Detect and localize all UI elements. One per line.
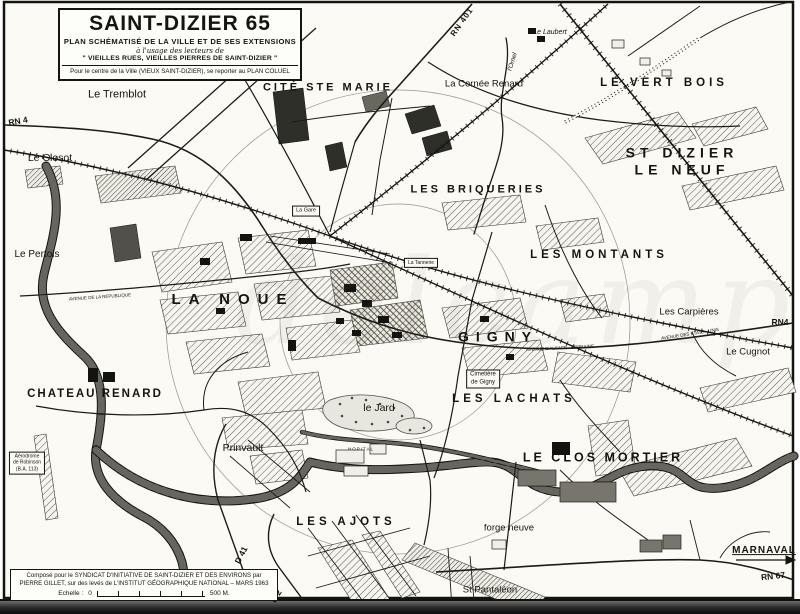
- scale-bar: [97, 591, 205, 597]
- map-reference-note: Pour le centre de la Ville (VIEUX SAINT-…: [62, 65, 298, 75]
- map-subtitle-note: à l'usage des lecteurs de: [62, 47, 298, 55]
- credit-box: Composé pour le SYNDICAT D'INITIATIVE DE…: [10, 569, 278, 601]
- title-box: SAINT-DIZIER 65 PLAN SCHÉMATISÉ DE LA VI…: [58, 8, 302, 81]
- scale-start: 0: [88, 590, 92, 597]
- map-title: SAINT-DIZIER 65: [62, 13, 298, 35]
- scale-end: 500 M.: [210, 590, 230, 597]
- map-subtitle-source: " VIEILLES RUES, VIEILLES PIERRES DE SAI…: [62, 55, 298, 62]
- credit-line-2: PIERRE GILLET, sur des levés de L'INSTIT…: [14, 580, 274, 588]
- credit-line-1: Composé pour le SYNDICAT D'INITIATIVE DE…: [14, 572, 274, 580]
- map-page: delcampe RN 401Le Laubertl'OrnelLe Tremb…: [0, 0, 800, 614]
- map-canvas: [0, 0, 800, 614]
- scale-label: Echelle :: [58, 590, 83, 597]
- scale-row: Echelle : 0 500 M.: [14, 590, 274, 597]
- map-subtitle: PLAN SCHÉMATISÉ DE LA VILLE ET DE SES EX…: [62, 37, 298, 46]
